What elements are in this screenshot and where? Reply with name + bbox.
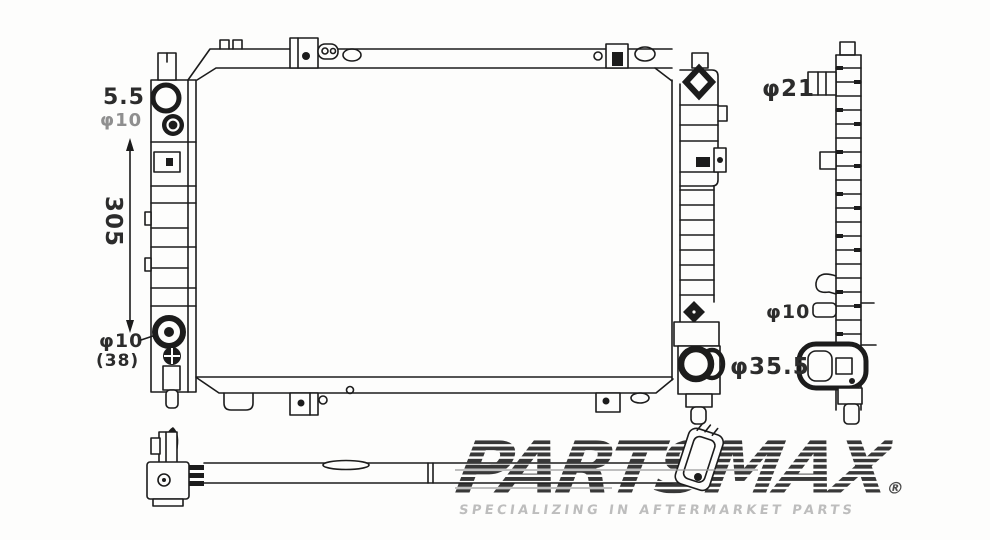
dim-side-small-diameter: φ10 [766,301,810,323]
lower-mounting-diamond [683,301,705,323]
watermark-brand-text: PARTSMAX [452,434,894,502]
filler-cap [153,85,179,111]
watermark-brand-row: PARTSMAX® [452,434,913,502]
partsmax-watermark: PARTSMAX® SPECIALIZING IN AFTERMARKET PA… [452,430,901,518]
side-small-nub [813,303,836,317]
core [188,49,673,393]
dim-arrow-up-icon [126,138,134,151]
right-tank [672,53,727,424]
side-view [799,42,876,424]
lower-hose-fitting [155,318,183,346]
watermark-tagline: SPECIALIZING IN AFTERMARKET PARTS [458,503,901,518]
top-brackets [220,38,672,81]
bottom-left-bracket [147,462,189,499]
dim-arrow-down-icon [126,320,134,333]
dim-top-left-thickness: 5.5 [103,85,145,110]
dim-inlet-diameter: φ21 [762,76,815,102]
side-outlet [799,344,866,388]
dim-top-left-diameter: φ10 [100,110,142,131]
side-hook-bracket [816,274,836,294]
petcock [163,347,181,365]
dim-bottom-left-note: (38) [96,351,139,371]
dim-core-height: 305 [100,196,126,247]
dim-outlet-diameter: φ35.5 [730,354,810,380]
front-view [145,38,727,424]
left-tank [145,53,196,408]
bottom-brackets [224,387,649,416]
lower-outlet [681,349,711,379]
mounting-diamond [686,68,712,96]
upper-hose-fitting [162,114,184,136]
inlet-fitting [808,72,836,95]
bottom-pointer-cap [164,427,178,452]
dimension-annotations: 5.5 φ10 305 φ10 (38) φ21 φ10 φ35.5 [96,76,815,380]
left-top-bracket [158,53,176,80]
dim-bottom-left-diameter: φ10 [99,330,143,352]
screenshot-canvas: PARTSMAX® SPECIALIZING IN AFTERMARKET PA… [0,0,990,540]
drain-plug [163,366,180,390]
registered-trademark-icon: ® [885,479,905,498]
